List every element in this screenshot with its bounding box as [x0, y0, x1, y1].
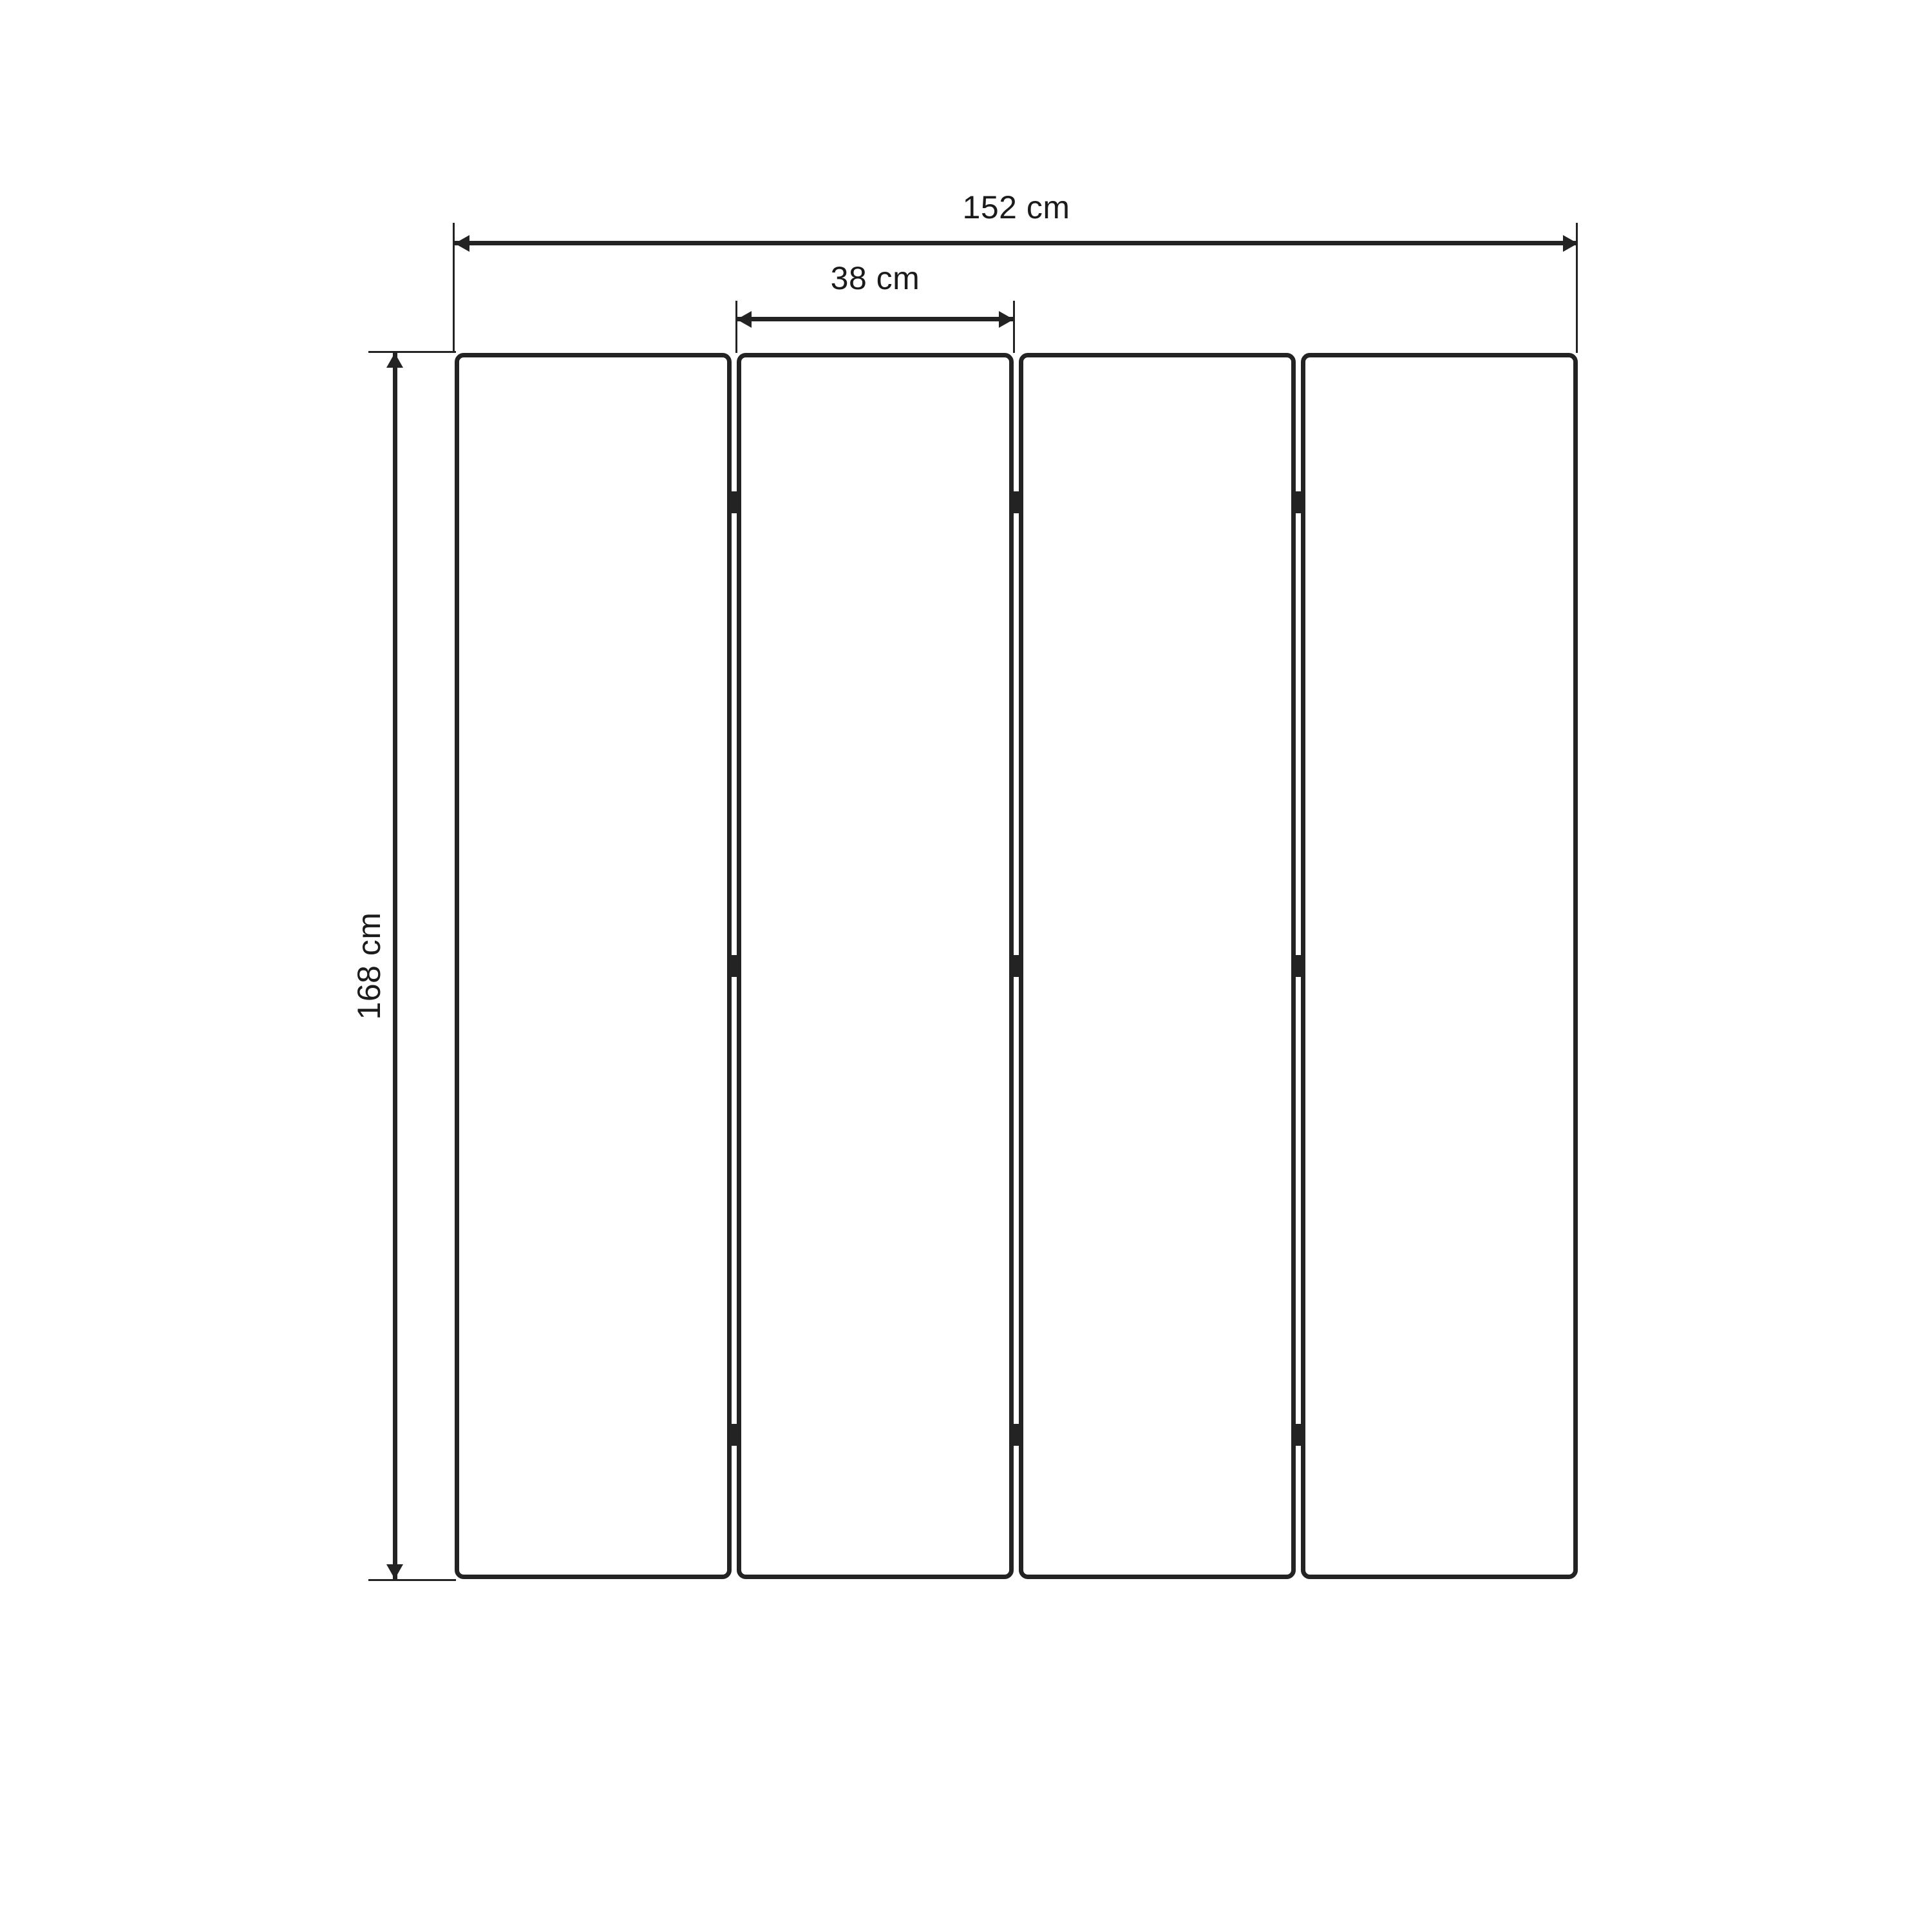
height-extension-bottom — [368, 1579, 456, 1581]
height-arrowhead-bottom-icon — [386, 1564, 403, 1579]
hinge-gap3-top — [1293, 491, 1303, 513]
total-width-arrowhead-left-icon — [455, 235, 469, 252]
panel-width-arrowhead-left-icon — [737, 311, 752, 328]
height-dimension-line — [393, 353, 397, 1579]
hinge-gap1-top — [729, 491, 739, 513]
dimension-diagram: 152 cm 38 cm 168 cm — [0, 0, 1932, 1932]
panel-4 — [1301, 353, 1578, 1579]
panel-1 — [455, 353, 732, 1579]
hinge-gap1-bottom — [729, 1424, 739, 1446]
total-width-dimension-line — [455, 241, 1578, 245]
panel-3 — [1019, 353, 1296, 1579]
panel-width-label: 38 cm — [737, 260, 1014, 296]
panel-width-arrowhead-right-icon — [999, 311, 1014, 328]
hinge-gap2-top — [1011, 491, 1021, 513]
height-arrowhead-top-icon — [386, 353, 403, 368]
total-width-label: 152 cm — [455, 189, 1578, 225]
panel-2 — [737, 353, 1014, 1579]
hinge-gap1-middle — [729, 955, 739, 977]
hinge-gap2-middle — [1011, 955, 1021, 977]
hinge-gap2-bottom — [1011, 1424, 1021, 1446]
panel-width-dimension-line — [737, 317, 1014, 321]
hinge-gap3-middle — [1293, 955, 1303, 977]
height-label: 168 cm — [351, 876, 387, 1056]
height-extension-top — [368, 351, 456, 353]
total-width-arrowhead-right-icon — [1563, 235, 1578, 252]
hinge-gap3-bottom — [1293, 1424, 1303, 1446]
